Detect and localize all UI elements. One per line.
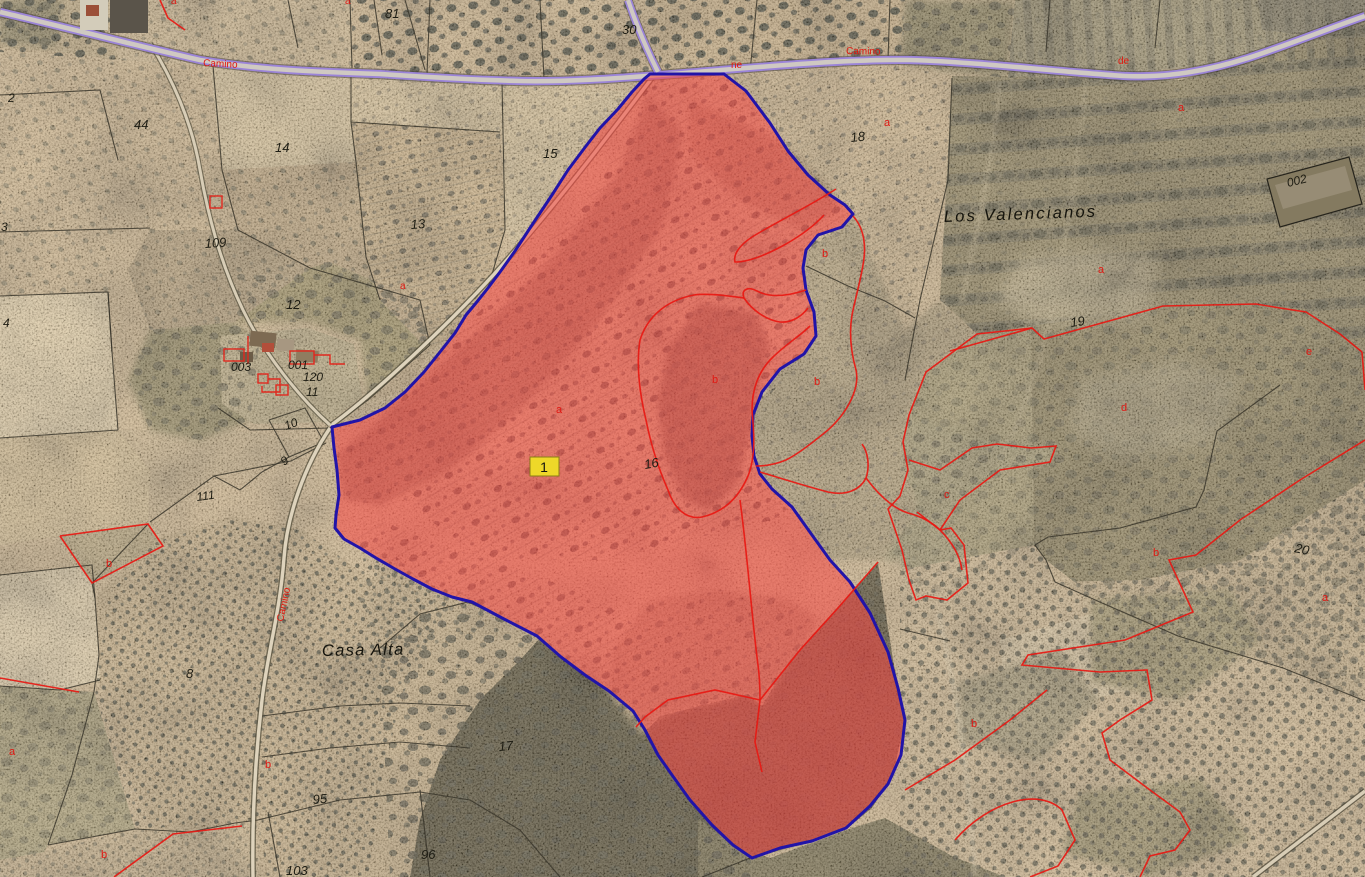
svg-text:b: b — [971, 718, 977, 730]
svg-text:120: 120 — [303, 370, 323, 384]
svg-text:a: a — [345, 0, 351, 7]
svg-text:15: 15 — [543, 146, 558, 161]
svg-text:b: b — [106, 558, 112, 570]
svg-text:d: d — [1121, 402, 1127, 414]
svg-text:b: b — [265, 759, 271, 771]
svg-text:b: b — [101, 849, 107, 861]
svg-text:19: 19 — [1069, 313, 1085, 330]
svg-text:a: a — [171, 0, 177, 7]
svg-text:003: 003 — [231, 360, 251, 374]
svg-text:103: 103 — [286, 863, 308, 877]
svg-text:ne: ne — [731, 60, 743, 71]
svg-text:14: 14 — [275, 140, 289, 155]
svg-text:Camino: Camino — [846, 46, 881, 58]
svg-text:b: b — [712, 374, 718, 386]
svg-text:e: e — [1306, 346, 1312, 358]
svg-text:1: 1 — [540, 459, 548, 475]
svg-text:2: 2 — [7, 91, 15, 105]
svg-text:001: 001 — [288, 358, 308, 372]
svg-text:de: de — [1118, 56, 1130, 67]
svg-text:12: 12 — [286, 297, 301, 312]
svg-text:44: 44 — [134, 117, 148, 132]
svg-text:11: 11 — [306, 385, 318, 399]
svg-text:Camino: Camino — [203, 58, 238, 71]
svg-text:81: 81 — [385, 6, 399, 21]
svg-text:b: b — [814, 376, 820, 388]
svg-text:a: a — [1178, 102, 1185, 114]
svg-text:18: 18 — [850, 128, 867, 145]
svg-text:b: b — [822, 248, 828, 260]
svg-text:17: 17 — [498, 738, 514, 754]
svg-text:a: a — [9, 746, 16, 758]
svg-text:30: 30 — [622, 22, 637, 37]
svg-text:a: a — [884, 117, 891, 129]
svg-text:13: 13 — [410, 216, 426, 232]
svg-text:109: 109 — [204, 235, 227, 251]
svg-text:a: a — [556, 404, 563, 416]
svg-text:a: a — [1098, 264, 1105, 276]
svg-text:b: b — [1153, 547, 1159, 559]
svg-text:8: 8 — [186, 666, 194, 681]
svg-text:a: a — [400, 281, 406, 292]
svg-text:96: 96 — [421, 847, 436, 862]
svg-text:Casa Alta: Casa Alta — [322, 641, 405, 660]
svg-text:a: a — [1322, 592, 1329, 604]
svg-text:3: 3 — [1, 220, 8, 234]
svg-text:111: 111 — [195, 488, 215, 504]
svg-text:c: c — [944, 489, 950, 501]
svg-text:95: 95 — [312, 791, 328, 807]
svg-text:4: 4 — [3, 316, 10, 330]
